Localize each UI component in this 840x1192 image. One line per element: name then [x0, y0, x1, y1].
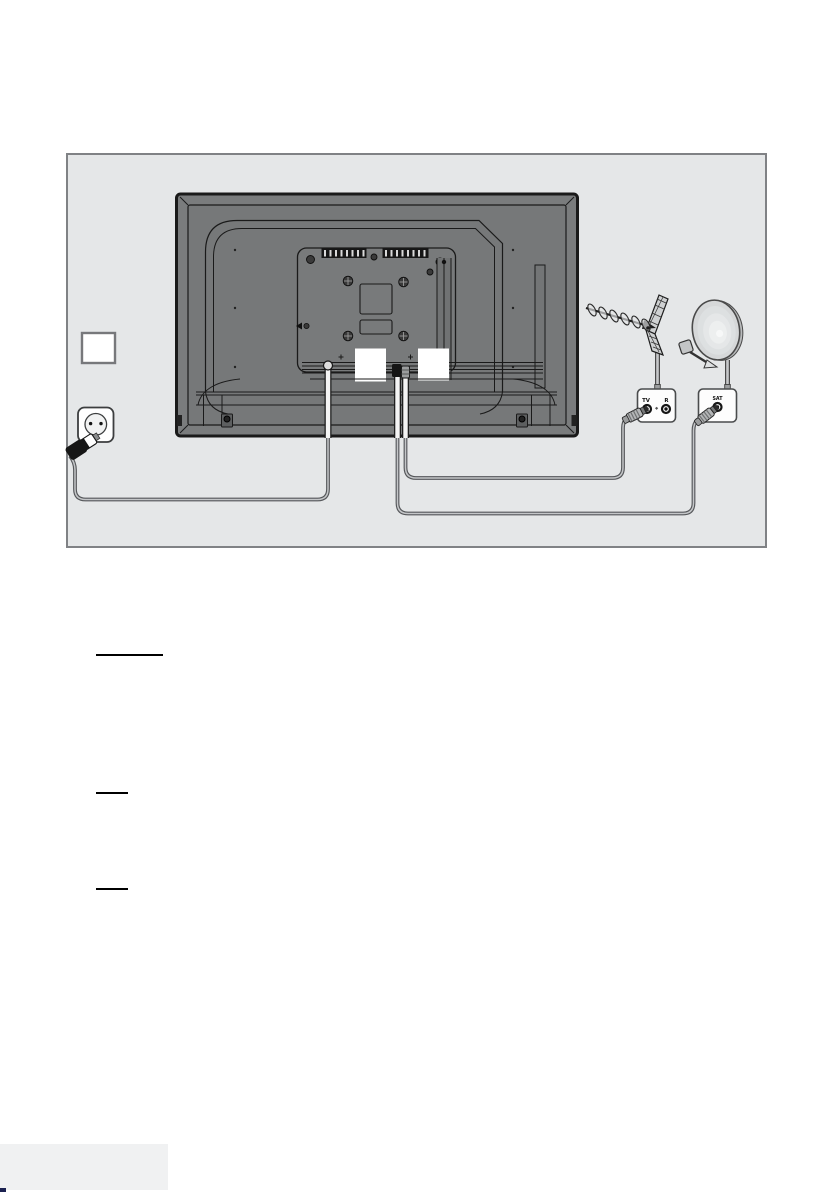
antenna-wall-outlet-icon: TV R [638, 389, 676, 422]
outlet-label-tv: TV [642, 398, 651, 404]
heading-underline-1 [96, 654, 163, 656]
antenna-iec-plug [392, 364, 402, 377]
satellite-f-plug [402, 366, 410, 378]
heading-underline-2 [96, 792, 128, 794]
outlet-label-sat: SAT [712, 396, 723, 402]
power-connector-plug [324, 361, 333, 370]
connector-label-right [418, 349, 449, 381]
blank-label-square-icon [82, 333, 115, 363]
manual-page: TV R SAT [0, 0, 840, 1192]
connector-label-left [355, 349, 386, 382]
connection-diagram: TV R SAT [0, 0, 840, 600]
footer-accent-mark [0, 1188, 6, 1192]
tv-rear-icon [177, 194, 578, 436]
heading-underline-3 [96, 888, 128, 890]
footer-tab [0, 1144, 168, 1190]
connection-diagram-svg: TV R SAT [0, 0, 840, 600]
